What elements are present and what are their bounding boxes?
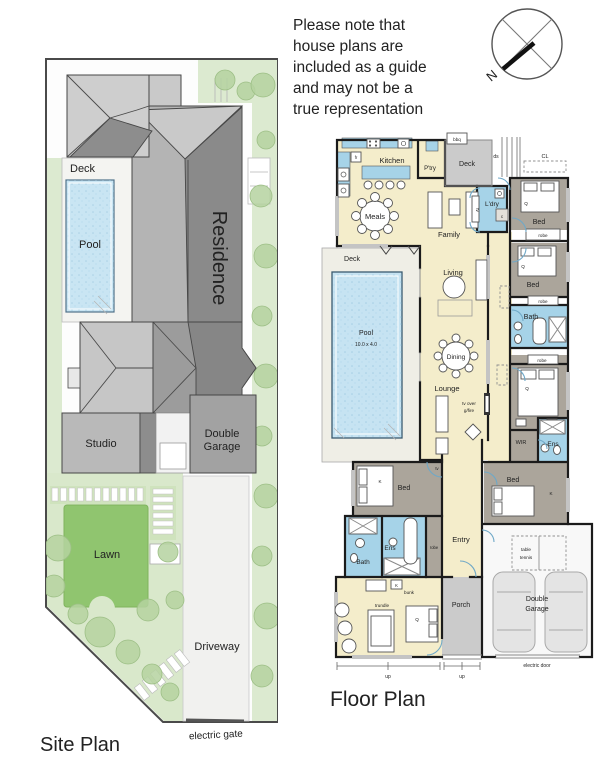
compass-rose: N bbox=[483, 9, 562, 84]
robe1-label: robe bbox=[538, 233, 548, 238]
table-tennis-label: table bbox=[521, 547, 531, 552]
clothesline-label: CL bbox=[541, 154, 548, 160]
garage-label: Garage bbox=[525, 606, 548, 613]
plan-page: { "note_lines": [ "Please note that", "h… bbox=[0, 0, 607, 768]
stepping-stones bbox=[52, 488, 143, 501]
pool-label: Pool bbox=[359, 330, 373, 337]
laundry-label: L'dry bbox=[485, 201, 500, 208]
site-garage-label: Garage bbox=[204, 441, 241, 453]
queen-label: Q bbox=[521, 264, 525, 269]
bath-label: Bath bbox=[524, 314, 539, 321]
table-tennis-label: tennis bbox=[520, 555, 533, 560]
note-line: Please note that bbox=[293, 17, 406, 34]
lounge-label: Lounge bbox=[434, 384, 459, 393]
entry-label: Entry bbox=[452, 535, 470, 544]
plan-canvas: Please note that house plans are include… bbox=[0, 0, 607, 768]
ensuite-label: Ens bbox=[384, 545, 396, 552]
trundle-label: trundle bbox=[375, 603, 389, 608]
porch-label: Porch bbox=[452, 602, 470, 609]
note-line: true representation bbox=[293, 101, 423, 118]
site-pool-label: Pool bbox=[79, 239, 101, 251]
kitchen-island bbox=[362, 166, 410, 179]
studio-label: Studio bbox=[85, 438, 116, 450]
ds-label: ds bbox=[493, 154, 499, 160]
wir-label: WIR bbox=[516, 440, 527, 446]
garage-label: Double bbox=[526, 596, 548, 603]
bed2-label: Bed bbox=[527, 282, 540, 289]
electric-door-label: electric door bbox=[523, 663, 551, 669]
driveway-area bbox=[183, 476, 249, 721]
north-needle bbox=[503, 43, 534, 69]
floor-plan: Kitchen fr P'try bbq Deck ds CL L'dry c … bbox=[322, 133, 592, 711]
electric-gate-mark bbox=[186, 720, 244, 721]
site-deck-label: Deck bbox=[70, 163, 96, 175]
bunk-label: bunk bbox=[404, 590, 415, 595]
ensuite2-label: Ens bbox=[547, 441, 559, 448]
note-line: and may not be a bbox=[293, 80, 413, 97]
bed5-label: Bed bbox=[398, 485, 411, 492]
lawn-label: Lawn bbox=[94, 549, 120, 561]
site-garage-label: Double bbox=[205, 428, 240, 440]
up-label: up bbox=[385, 674, 391, 680]
queen-label: Q bbox=[525, 386, 529, 391]
note-line: included as a guide bbox=[293, 59, 427, 76]
driveway-label: Driveway bbox=[194, 641, 240, 653]
porch-area bbox=[442, 577, 482, 655]
disclaimer-note: Please note that house plans are include… bbox=[293, 17, 427, 118]
bath2-label: Bath bbox=[356, 559, 370, 566]
robe3-label: robe bbox=[537, 358, 547, 363]
robe2-label: robe bbox=[538, 299, 548, 304]
living-label: Living bbox=[443, 268, 463, 277]
king-label: K bbox=[395, 583, 398, 588]
residence-label: Residence bbox=[208, 211, 230, 306]
north-label: N bbox=[483, 67, 500, 85]
floor-plan-title: Floor Plan bbox=[330, 688, 426, 711]
site-plan: Deck Pool Residence Studio Double Garage… bbox=[40, 59, 280, 756]
dining-label: Dining bbox=[447, 354, 466, 361]
bed1-label: Bed bbox=[533, 219, 546, 226]
electric-gate-label: electric gate bbox=[189, 729, 244, 743]
queen-label: Q bbox=[524, 201, 528, 206]
kitchen-label: Kitchen bbox=[379, 156, 404, 165]
tv-over-label: tv over bbox=[462, 401, 476, 406]
bed4-label: Bed bbox=[507, 477, 520, 484]
note-line: house plans are bbox=[293, 38, 403, 55]
dimension-lines bbox=[337, 662, 480, 670]
bbq-label: bbq bbox=[453, 137, 461, 142]
meals-label: Meals bbox=[365, 212, 385, 221]
up-label: up bbox=[459, 674, 465, 680]
pantry-label: P'try bbox=[424, 166, 436, 172]
site-plan-title: Site Plan bbox=[40, 734, 120, 756]
robe4-label: robe bbox=[430, 545, 439, 550]
deck-top-label: Deck bbox=[459, 161, 475, 168]
wir-room bbox=[510, 430, 538, 462]
queen-label: Q bbox=[415, 617, 419, 622]
gfire-label: g/fire bbox=[464, 408, 475, 413]
family-label: Family bbox=[438, 230, 460, 239]
deck-left-label: Deck bbox=[344, 256, 360, 263]
pool-size-label: 10.0 x 4.0 bbox=[355, 342, 377, 348]
